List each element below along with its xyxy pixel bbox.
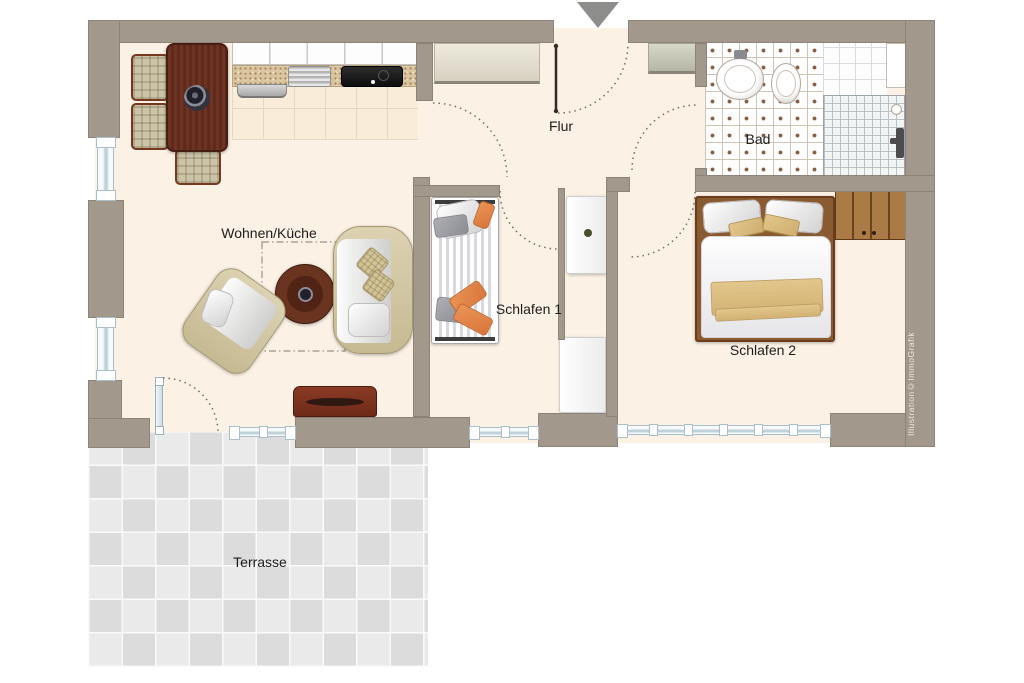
built-in-closet-lower	[559, 337, 606, 413]
double-bed	[695, 196, 835, 342]
room-label-terrace: Terrasse	[233, 554, 287, 570]
window-mullion	[649, 424, 658, 436]
sofa-pillow-white	[348, 303, 390, 337]
wall-left-lower	[88, 380, 122, 420]
hall-cabinet	[648, 43, 698, 74]
tv-sideboard-handle	[306, 398, 364, 406]
wall-left-middle	[88, 200, 124, 318]
window-mullion	[501, 426, 510, 438]
window-living-west-lower	[97, 318, 114, 380]
dining-chair	[175, 149, 221, 185]
window-mullion	[789, 424, 798, 436]
kitchen-dishwasher	[237, 84, 287, 98]
wall-top-right	[628, 20, 935, 43]
window-bedroom1-south	[470, 427, 538, 437]
dining-chair	[131, 54, 169, 101]
hall-wardrobe	[434, 43, 540, 84]
illustrator-watermark: Illustration©ImmoGrafik	[906, 310, 916, 436]
room-label-hall: Flur	[549, 118, 573, 134]
room-label-bedroom2: Schlafen 2	[730, 342, 796, 358]
wall-left-upper	[88, 20, 120, 138]
bathroom-sink	[716, 58, 764, 100]
room-label-bath: Bad	[746, 131, 771, 147]
dining-chair	[131, 103, 169, 150]
wall-bedroom1-top	[413, 185, 500, 197]
window-mullion	[754, 424, 763, 436]
closet-knob	[584, 229, 592, 237]
terrace-floor	[88, 432, 428, 667]
window-mullion	[684, 424, 693, 436]
single-bed	[431, 197, 499, 344]
window-mullion	[259, 426, 268, 438]
coffee-table-center	[298, 287, 313, 302]
wall-closet-west	[558, 188, 565, 340]
wall-bath-west-upper	[695, 43, 707, 87]
built-in-closet-upper	[566, 196, 607, 274]
toilet-bowl	[776, 70, 796, 97]
shower-head	[890, 138, 904, 144]
window-living-west-upper	[97, 138, 114, 200]
sofa	[333, 226, 413, 354]
room-label-bedroom1: Schlafen 1	[496, 301, 562, 317]
window-living-south	[230, 427, 295, 437]
kitchen-sink-drainer	[288, 66, 331, 87]
sink-faucet	[734, 50, 747, 59]
wardrobe-handle	[862, 231, 866, 235]
wall-hall-kitchen	[416, 43, 433, 101]
wall-bath-south	[695, 175, 935, 192]
wardrobe-handle	[872, 231, 876, 235]
bedroom2-wardrobe	[835, 191, 908, 240]
kitchen-upper-cabinets	[232, 41, 418, 65]
floor-plan: Wohnen/Küche Flur Bad Schlafen 1 Schlafe…	[0, 0, 1024, 683]
kitchen-cooktop	[341, 66, 403, 87]
cooktop-knob	[371, 80, 375, 84]
wall-corner-southwest	[88, 418, 150, 448]
window-bedroom2-south	[618, 425, 830, 435]
window-mullion	[719, 424, 728, 436]
sink-basin	[724, 65, 756, 93]
bathroom-plain-tiles	[823, 43, 887, 96]
wall-top-left	[88, 20, 554, 43]
tv-sideboard	[293, 386, 377, 417]
terrace-door-leaf	[155, 378, 163, 434]
dining-table-centerpiece	[184, 85, 210, 111]
room-label-living: Wohnen/Küche	[221, 225, 316, 241]
wall-living-bedroom1	[413, 177, 430, 417]
wall-closet-east	[606, 188, 618, 417]
toilet	[771, 63, 801, 104]
dining-table	[166, 43, 228, 152]
wall-bottom-living	[295, 417, 470, 448]
entrance-arrow-icon	[577, 2, 619, 28]
wall-hall-bedroom2	[606, 177, 630, 192]
cooktop-burner	[378, 70, 389, 81]
shower-drain	[891, 104, 902, 115]
wall-bottom-bedroom1	[538, 413, 618, 447]
